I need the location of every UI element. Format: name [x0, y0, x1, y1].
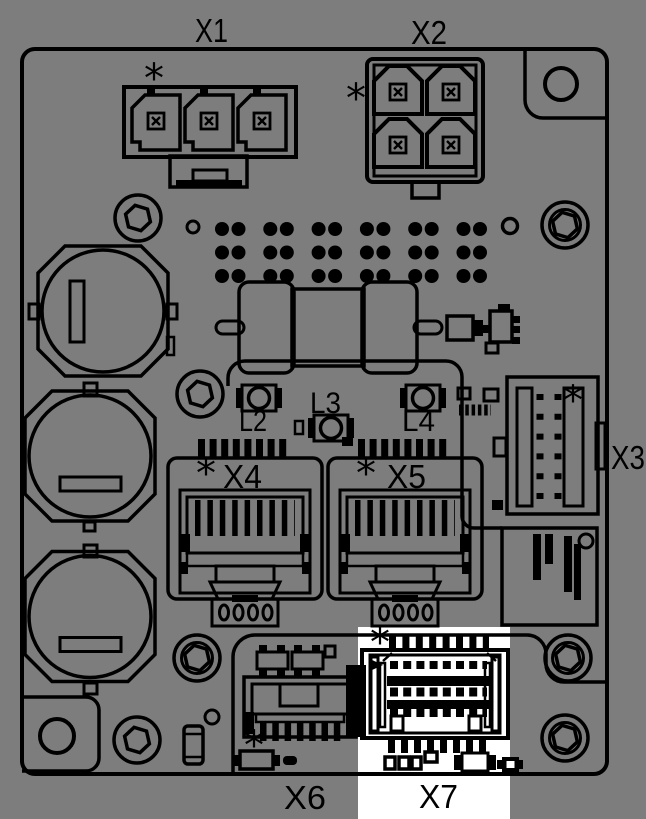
pcb-diagram-canvas: X1 * X2 * — [0, 0, 646, 819]
label-x4: X4 — [223, 458, 262, 495]
pin1-marker-x5: * — [356, 451, 376, 497]
pin1-marker-x2: * — [346, 76, 366, 122]
label-x1: X1 — [195, 12, 228, 49]
pin1-marker-x3: * — [563, 378, 583, 424]
pcb-outline-diagram: X1 * X2 * — [0, 0, 646, 819]
label-x2: X2 — [411, 14, 447, 51]
label-x3: X3 — [611, 439, 645, 476]
pin1-marker-x7: * — [370, 620, 390, 666]
label-l2: L2 — [239, 405, 267, 438]
label-x7: X7 — [419, 778, 458, 815]
pin1-marker-x4: * — [196, 451, 216, 497]
label-l4: L4 — [402, 405, 435, 438]
label-x6: X6 — [284, 779, 326, 816]
pin1-marker-x6: * — [244, 723, 264, 769]
label-x5: X5 — [387, 458, 426, 495]
